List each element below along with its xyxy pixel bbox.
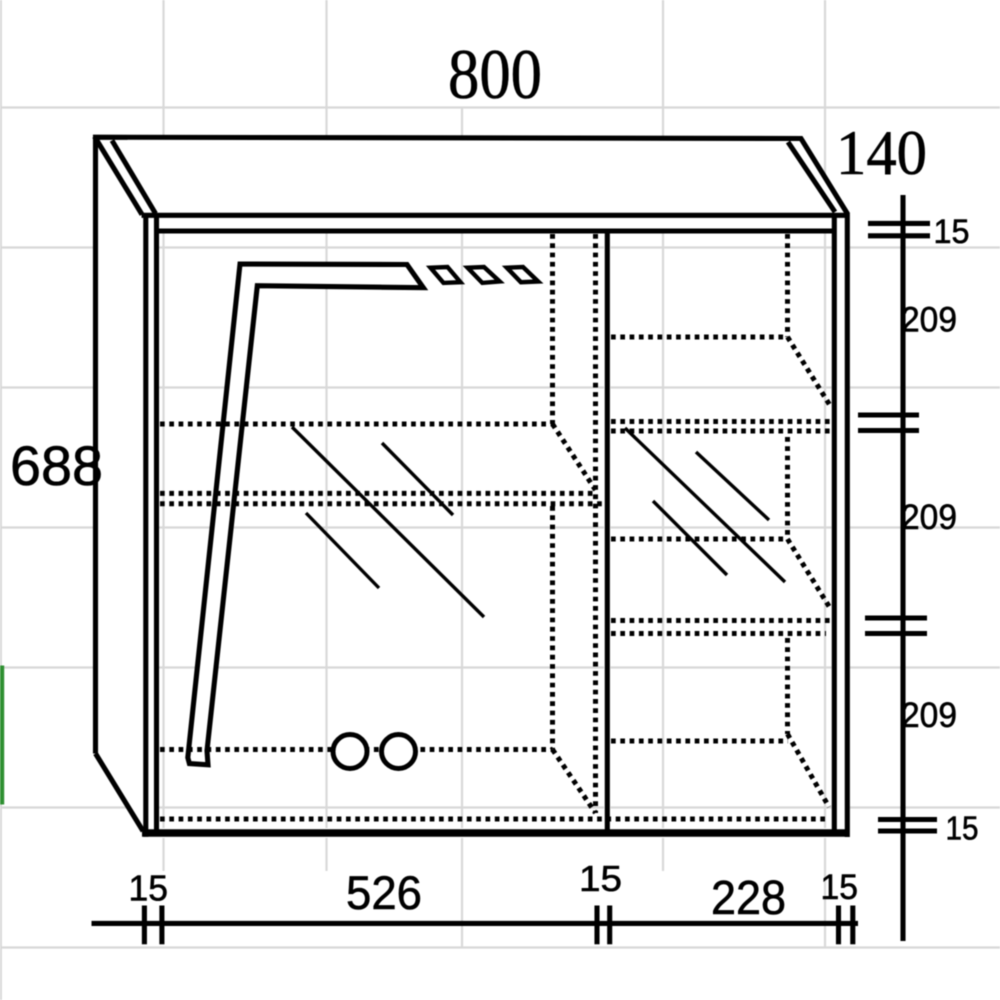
svg-text:209: 209 xyxy=(901,696,957,735)
svg-text:688: 688 xyxy=(10,434,103,497)
svg-text:15: 15 xyxy=(934,213,970,251)
svg-text:209: 209 xyxy=(901,301,957,340)
svg-text:15: 15 xyxy=(579,858,622,899)
svg-text:526: 526 xyxy=(346,866,422,919)
svg-text:800: 800 xyxy=(448,36,542,114)
svg-text:228: 228 xyxy=(711,872,786,925)
svg-text:15: 15 xyxy=(129,868,169,909)
svg-text:209: 209 xyxy=(901,498,957,537)
svg-text:140: 140 xyxy=(836,118,927,188)
svg-text:15: 15 xyxy=(821,868,859,907)
svg-text:15: 15 xyxy=(946,810,979,847)
